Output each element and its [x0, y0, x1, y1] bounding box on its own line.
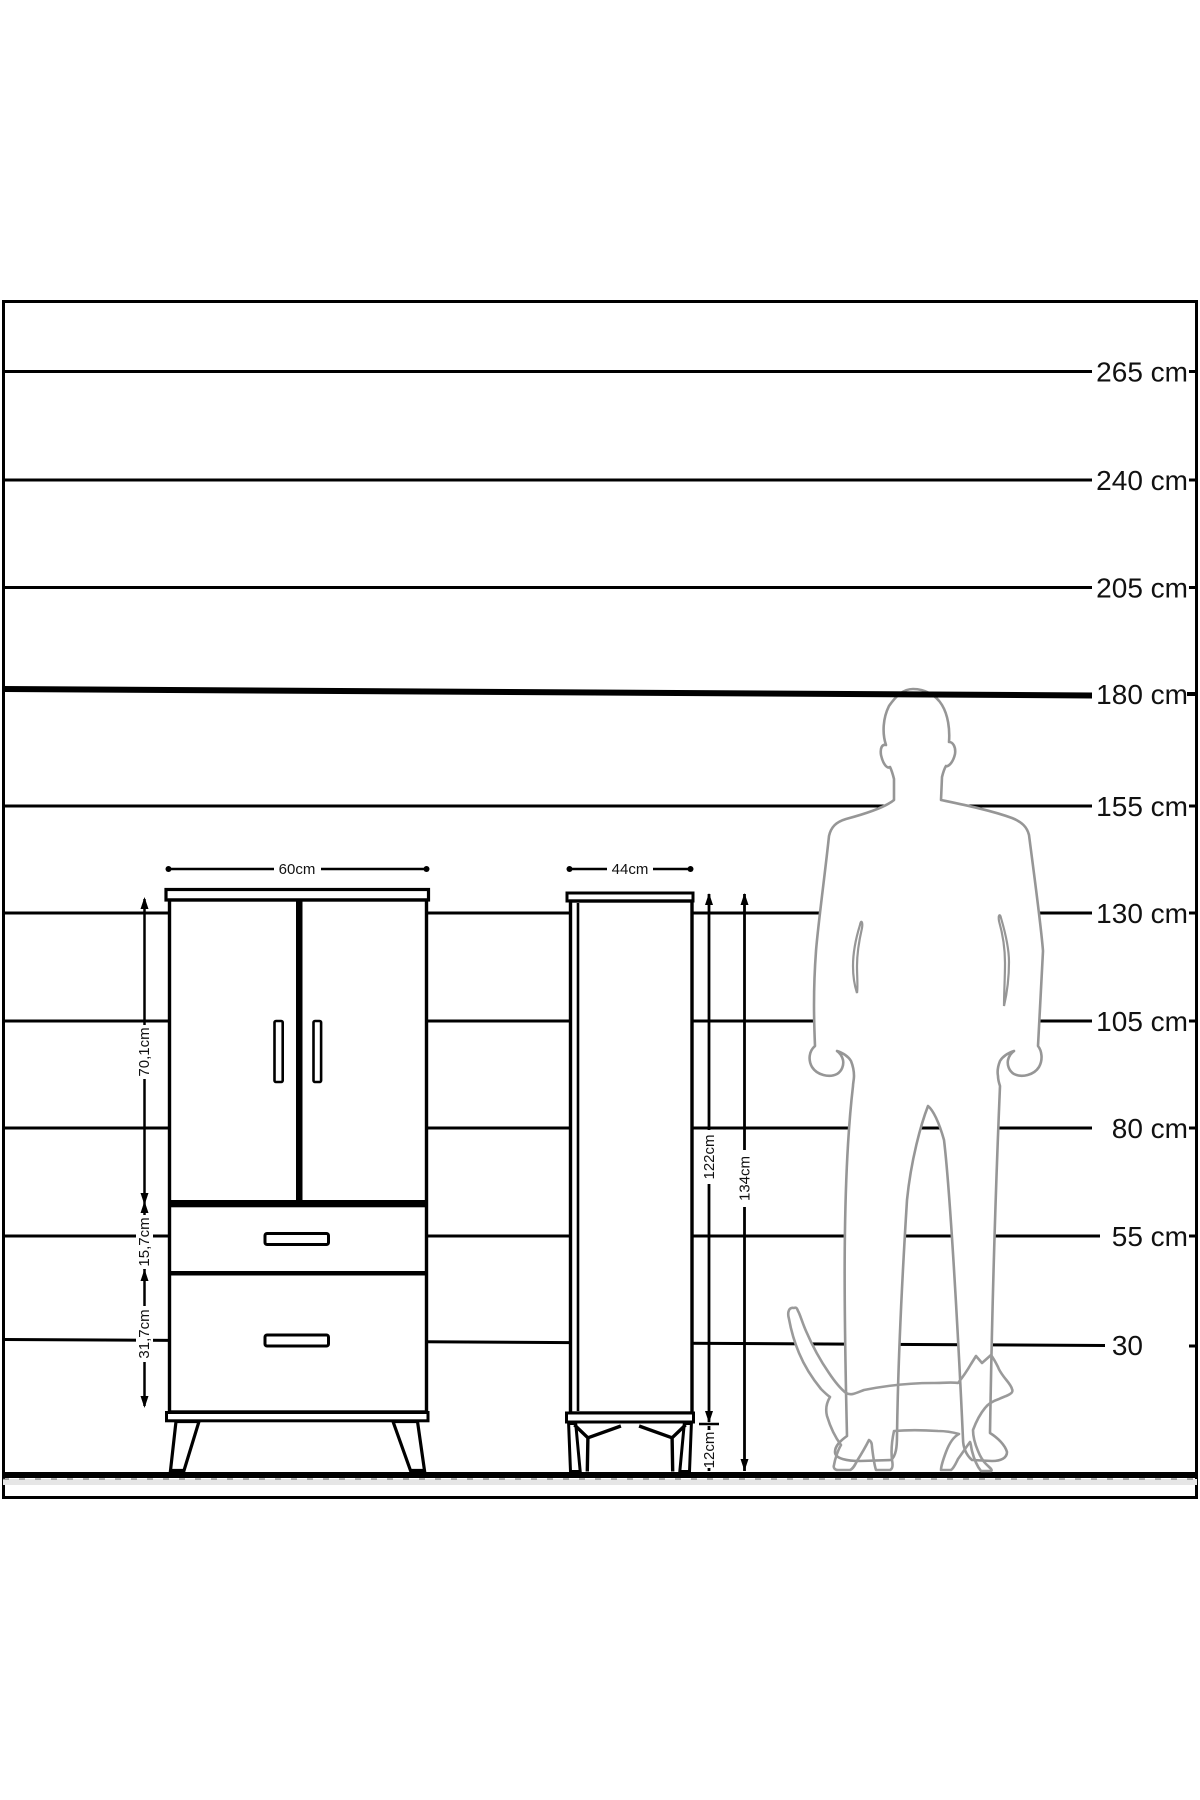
- svg-text:205 cm: 205 cm: [1096, 573, 1188, 604]
- svg-text:31,7cm: 31,7cm: [136, 1309, 153, 1358]
- svg-text:15,7cm: 15,7cm: [136, 1217, 153, 1266]
- svg-text:44cm: 44cm: [612, 861, 649, 878]
- svg-text:80 cm: 80 cm: [1112, 1113, 1188, 1144]
- svg-text:240 cm: 240 cm: [1096, 465, 1188, 496]
- svg-text:155 cm: 155 cm: [1096, 791, 1188, 822]
- svg-text:12cm: 12cm: [701, 1432, 718, 1469]
- svg-text:134cm: 134cm: [737, 1156, 754, 1201]
- svg-text:70,1cm: 70,1cm: [136, 1027, 153, 1076]
- svg-text:60cm: 60cm: [279, 861, 316, 878]
- svg-text:122cm: 122cm: [701, 1134, 718, 1179]
- svg-text:130 cm: 130 cm: [1096, 898, 1188, 929]
- svg-text:180 cm: 180 cm: [1096, 679, 1188, 710]
- svg-text:105 cm: 105 cm: [1096, 1006, 1188, 1037]
- svg-text:30: 30: [1112, 1330, 1143, 1361]
- svg-text:265 cm: 265 cm: [1096, 357, 1188, 388]
- svg-text:55 cm: 55 cm: [1112, 1221, 1188, 1252]
